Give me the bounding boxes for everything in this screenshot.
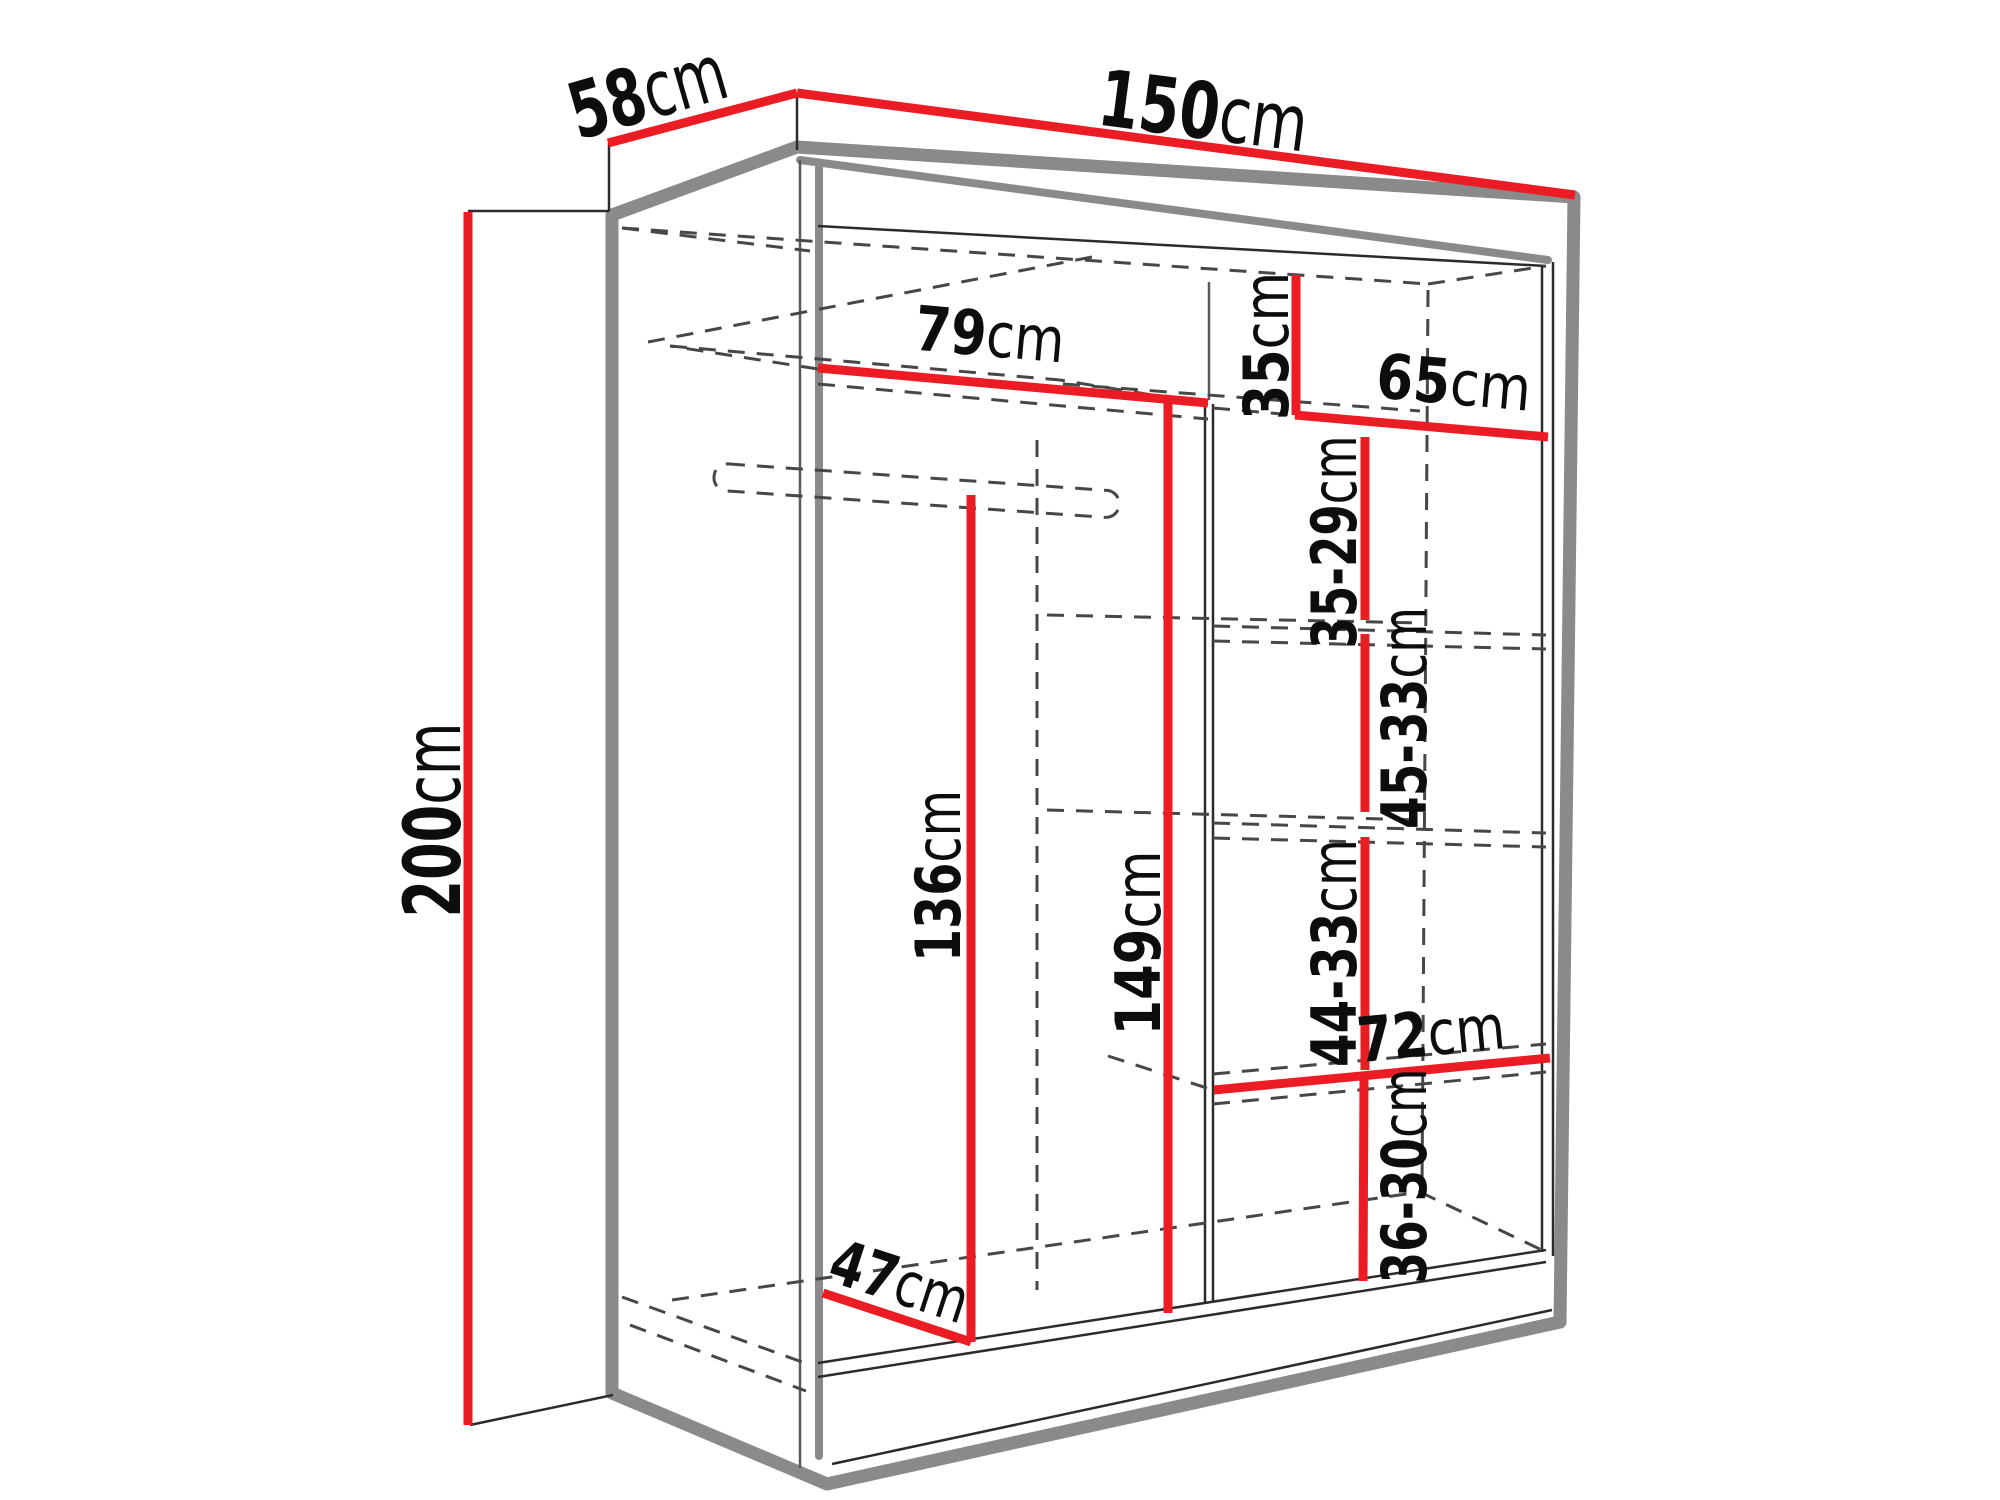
bottom-left-depth-b <box>630 1325 806 1391</box>
top-right-depth-edge <box>1428 266 1546 284</box>
label-width-150: 150cm <box>1093 54 1313 171</box>
label-shelf-79: 79cm <box>912 292 1068 378</box>
dim-line-gap-36-30 <box>1363 1079 1364 1281</box>
hanging-rod <box>713 463 1120 518</box>
label-gap-45-33: 45-33cm <box>1368 607 1441 829</box>
label-gap-36-30: 36-30cm <box>1368 1069 1441 1284</box>
label-height-200: 200cm <box>389 723 479 918</box>
bottom-left-depth-a <box>622 1297 802 1362</box>
floor-back-edge <box>672 1192 1420 1300</box>
label-hanging-136: 136cm <box>902 790 975 962</box>
label-top-gap-35: 35cm <box>1230 272 1303 420</box>
wardrobe-dimension-diagram: 58cm 150cm 200cm 79cm 35cm 65cm 35-29cm … <box>0 0 2000 1500</box>
label-gap-35-29: 35-29cm <box>1298 436 1371 649</box>
label-middle-149: 149cm <box>1102 851 1175 1036</box>
right-shelf-3-front-b <box>1213 838 1546 847</box>
shelf-4-left-depth <box>1108 1056 1213 1090</box>
height-dim-bottom-connector <box>470 1395 613 1425</box>
label-width-72: 72cm <box>1354 990 1508 1077</box>
dim-line-shelf-79 <box>818 368 1208 403</box>
label-width-65: 65cm <box>1373 339 1534 425</box>
label-depth-58: 58cm <box>559 28 738 159</box>
